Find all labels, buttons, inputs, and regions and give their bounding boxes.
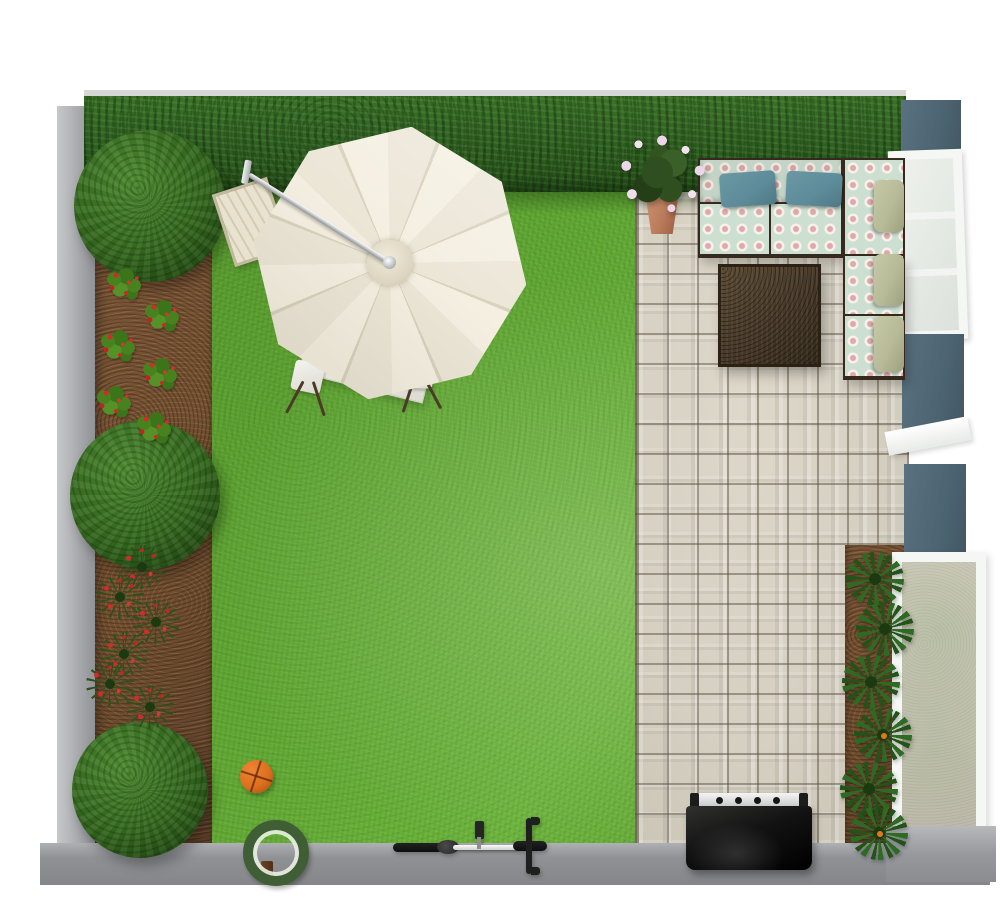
tropical-plant [856,602,914,656]
strawberry-plant [94,386,134,418]
strawberry-plant [98,330,138,362]
grill-knob [716,797,723,804]
house-wall-segment-mid [902,334,964,430]
strawberry-plant [140,358,180,390]
garden-plan-scene [0,0,1000,907]
grill-knob [754,797,761,804]
barbecue-grill [686,791,812,873]
sage-back-cushion [874,316,904,372]
umbrella-hub-pin [383,256,396,269]
bicycle-handlebar-grip [531,867,540,875]
teal-throw-pillow [719,170,777,208]
bicycle-handlebar [526,818,532,874]
sage-back-cushion [874,254,904,306]
house-wall-segment-lower [904,464,966,558]
bicycle-crank [477,837,481,849]
topiary-bush-top [74,130,226,282]
wreath-ornament [243,820,309,886]
sofa-seat-cushion [700,204,769,254]
tropical-plant [846,552,904,606]
strawberry-plant [142,300,182,332]
tropical-plant-flowering [854,708,912,762]
tropical-plant [842,655,900,709]
topiary-bush-bottom [72,722,208,858]
red-flower-clump [126,685,174,729]
tropical-plant-flowering [850,806,908,860]
sofa-seat-cushion [771,204,841,254]
wicker-coffee-table [718,264,821,367]
strawberry-plant [134,412,174,444]
grill-knob [773,797,780,804]
basketball [240,760,273,793]
teal-throw-pillow [785,171,843,208]
bicycle-handlebar-grip [531,817,540,825]
sage-back-cushion [874,180,904,232]
pink-flowering-plant [615,133,709,227]
bicycle-rear-wheel [393,843,443,852]
bicycle-frame [453,845,519,850]
grill-knob [735,797,742,804]
bicycle [393,817,551,875]
patio-door-lower-right [892,552,986,844]
grill-body [686,806,812,870]
strawberry-plant [104,268,144,300]
